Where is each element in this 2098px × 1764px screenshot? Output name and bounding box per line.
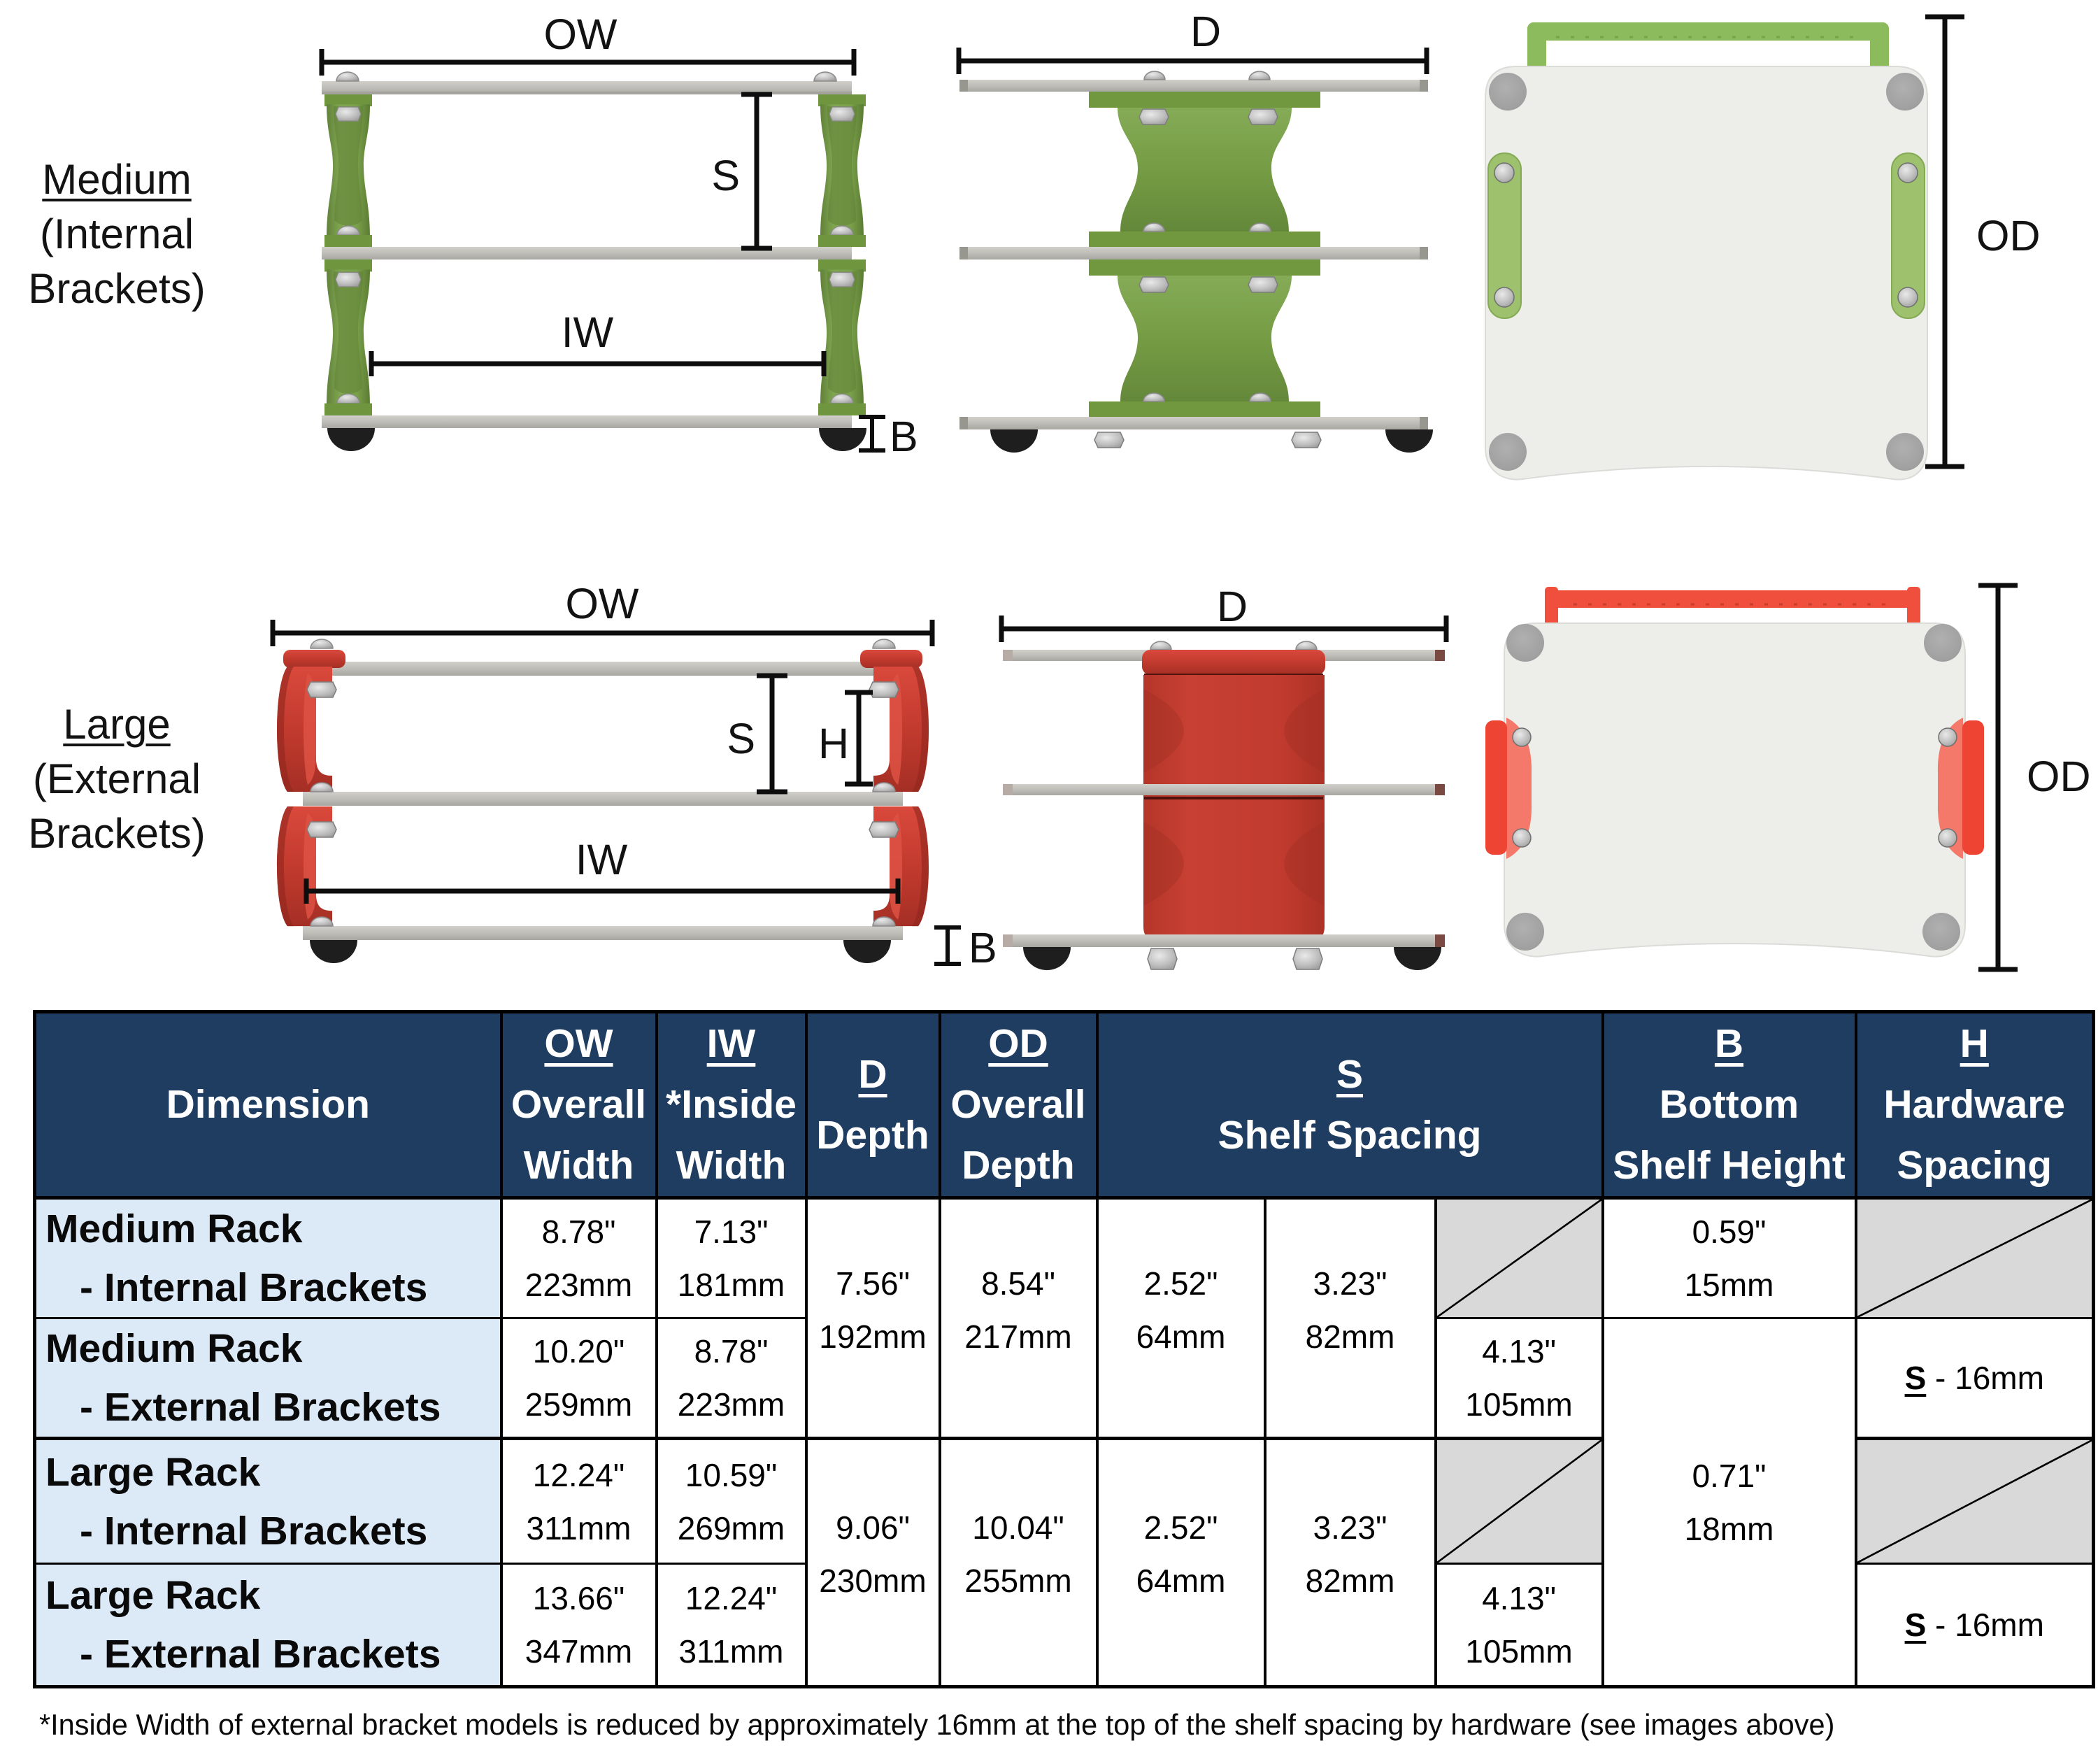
svg-text:OD: OD bbox=[2027, 753, 2091, 800]
svg-text:D: D bbox=[1217, 583, 1248, 630]
svg-text:B: B bbox=[969, 924, 997, 972]
svg-text:OW: OW bbox=[543, 10, 617, 58]
svg-text:IW: IW bbox=[576, 836, 628, 883]
svg-text:IW: IW bbox=[562, 308, 614, 356]
svg-text:H: H bbox=[818, 720, 849, 767]
svg-text:S: S bbox=[727, 715, 755, 762]
svg-text:OD: OD bbox=[1976, 212, 2041, 259]
svg-text:S: S bbox=[711, 152, 740, 199]
svg-text:OW: OW bbox=[565, 580, 638, 627]
svg-text:D: D bbox=[1190, 8, 1221, 55]
svg-text:B: B bbox=[890, 413, 918, 460]
